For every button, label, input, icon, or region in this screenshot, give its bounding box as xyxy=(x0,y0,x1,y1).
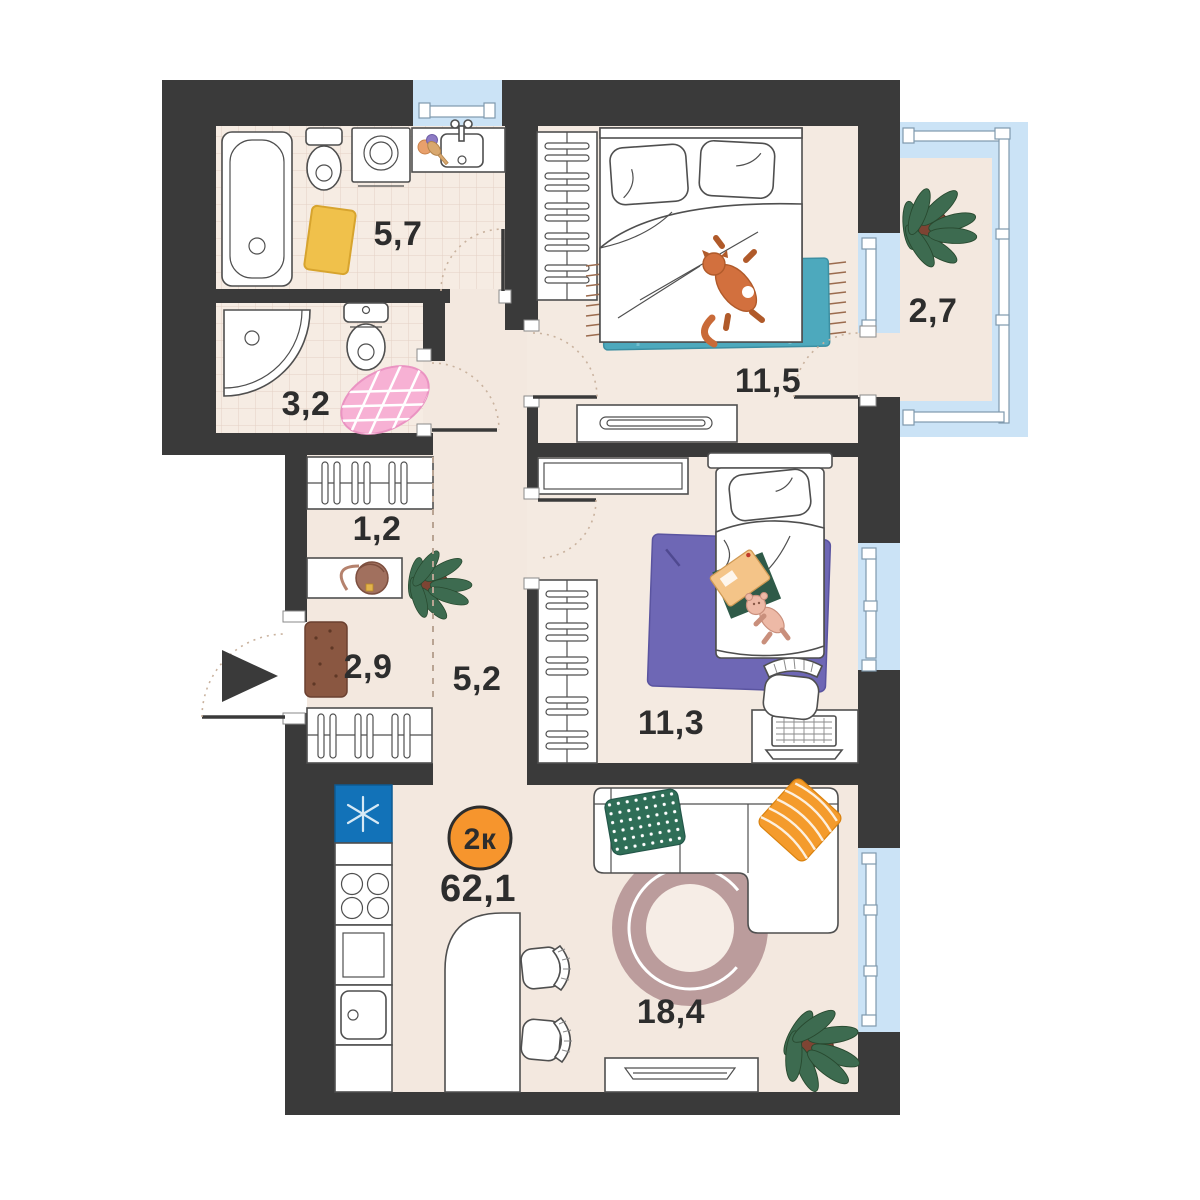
stove-icon xyxy=(335,865,392,925)
doormat xyxy=(305,622,347,697)
kids-dresser xyxy=(538,458,688,494)
room-label-living-kitchen: 18,4 xyxy=(637,993,705,1031)
tv-console xyxy=(605,1058,758,1092)
room-label-storage: 1,2 xyxy=(353,510,402,548)
bedroom-balcony-window xyxy=(858,233,900,333)
kids-wardrobe xyxy=(538,580,597,763)
bar-table xyxy=(445,913,520,1092)
area-badge: 2к xyxy=(449,807,511,869)
room-label-bedroom: 11,5 xyxy=(735,362,801,400)
bedroom-console xyxy=(577,405,737,442)
hallway-wardrobe xyxy=(307,708,432,763)
kitchen-sink-icon xyxy=(335,985,392,1045)
double-bed xyxy=(600,128,802,342)
toilet-icon xyxy=(306,128,342,190)
bar-stool xyxy=(520,1018,572,1062)
storage-wardrobe xyxy=(307,457,433,509)
bar-stool xyxy=(520,946,571,990)
entrance-door xyxy=(202,611,305,724)
washing-machine-icon xyxy=(352,128,410,186)
shelf-with-bag xyxy=(307,558,402,598)
total-area-label: 62,1 xyxy=(440,868,516,910)
wardrobe-icon xyxy=(537,132,597,300)
balcony-floor xyxy=(893,158,992,401)
bathroom-window xyxy=(413,80,502,126)
room-label-wc: 3,2 xyxy=(282,385,331,423)
floor-plan-drawing: 5,7 3,2 1,2 2,9 5,2 11,5 2,7 11,3 18,4 2… xyxy=(0,0,1200,1200)
living-room-window xyxy=(858,848,900,1032)
badge-label: 2к xyxy=(464,823,497,856)
entrance-arrow xyxy=(222,650,278,702)
floor-plan: 5,7 3,2 1,2 2,9 5,2 11,5 2,7 11,3 18,4 2… xyxy=(0,0,1200,1200)
room-label-corridor: 5,2 xyxy=(453,660,502,698)
fridge-icon xyxy=(335,785,392,843)
oven-icon xyxy=(335,925,392,985)
room-label-kids-room: 11,3 xyxy=(638,704,704,742)
toilet-icon xyxy=(344,303,388,370)
green-pillow xyxy=(604,788,687,856)
room-label-hallway: 2,9 xyxy=(344,648,393,686)
bathtub xyxy=(222,132,292,286)
room-label-bathroom: 5,7 xyxy=(374,215,423,253)
kids-room-window xyxy=(858,543,900,671)
desk-chair xyxy=(762,658,822,721)
sink-icon xyxy=(412,120,505,172)
room-label-balcony: 2,7 xyxy=(909,292,958,330)
laptop-icon xyxy=(766,716,842,759)
bath-mat xyxy=(304,205,356,275)
